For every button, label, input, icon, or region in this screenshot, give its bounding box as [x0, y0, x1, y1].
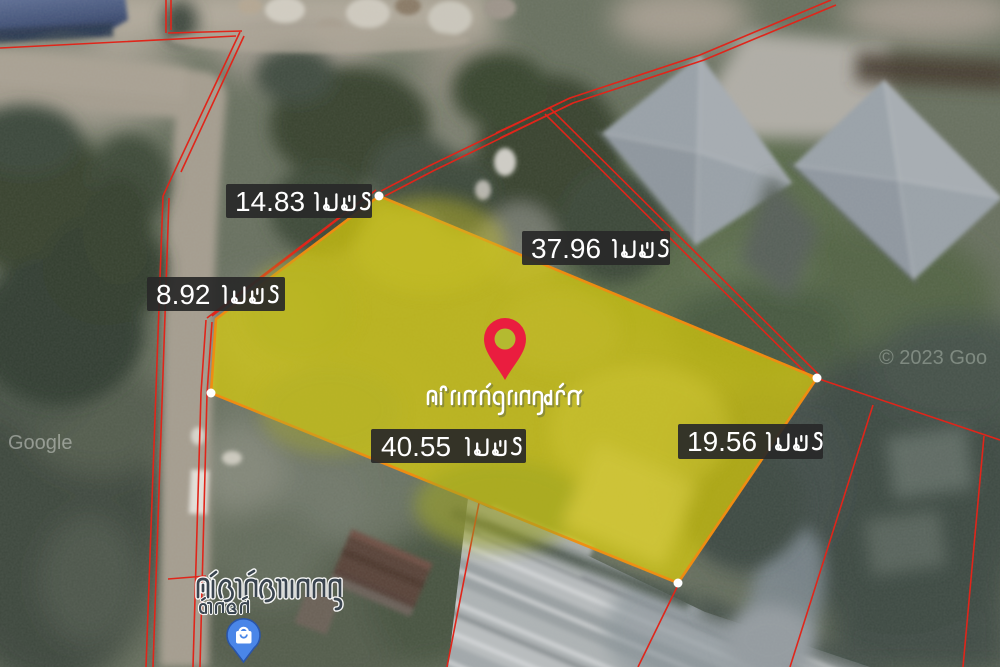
svg-text:© 2023 Goo: © 2023 Goo — [879, 347, 987, 369]
svg-text:40.55: 40.55 — [381, 431, 451, 462]
svg-text:8.92: 8.92 — [156, 279, 211, 310]
svg-text:19.56: 19.56 — [687, 426, 757, 457]
svg-text:14.83: 14.83 — [235, 186, 305, 217]
svg-text:37.96: 37.96 — [531, 233, 601, 264]
svg-text:Google: Google — [8, 432, 73, 454]
